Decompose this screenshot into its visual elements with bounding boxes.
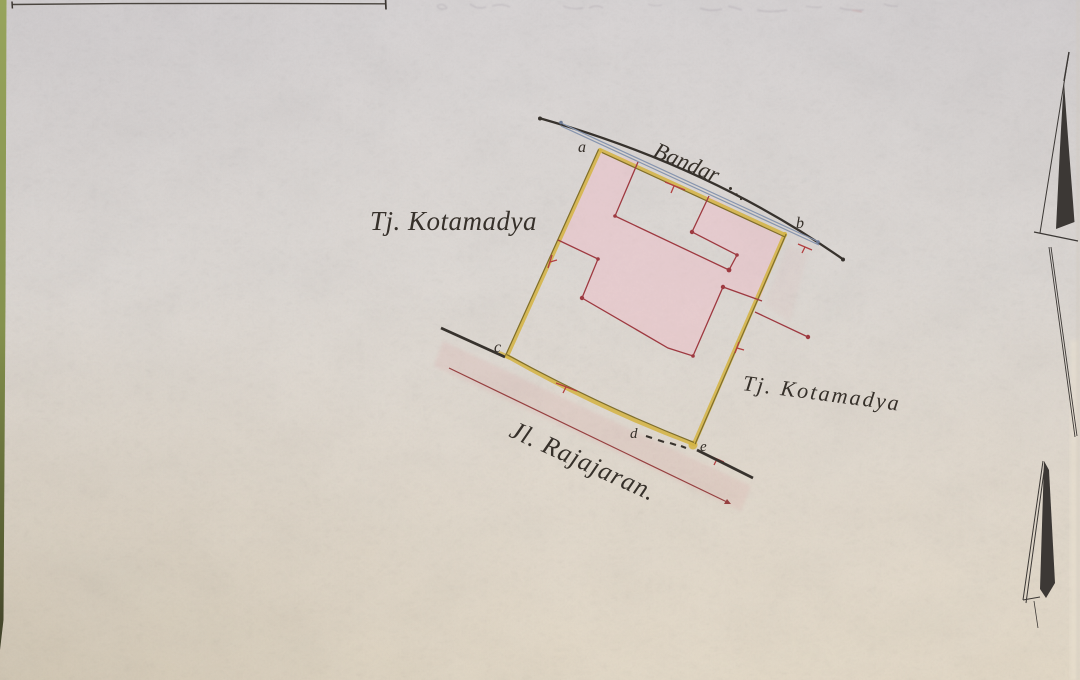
svg-text:Tj. Kotamadya: Tj. Kotamadya [370,206,537,236]
svg-text:b: b [796,215,804,232]
svg-text:d: d [630,426,638,442]
svg-text:c: c [494,339,501,356]
svg-text:e: e [700,439,707,455]
svg-text:a: a [578,139,586,156]
